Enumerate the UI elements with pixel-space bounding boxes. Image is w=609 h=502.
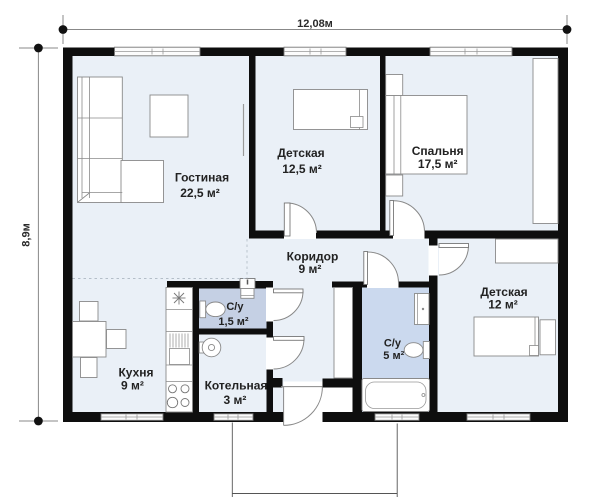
svg-text:1,5 м²: 1,5 м²: [218, 316, 248, 328]
svg-text:С/у: С/у: [384, 337, 402, 349]
svg-text:17,5 м²: 17,5 м²: [418, 157, 458, 171]
svg-text:Детская: Детская: [277, 146, 324, 160]
svg-text:9 м²: 9 м²: [121, 379, 144, 393]
svg-text:12 м²: 12 м²: [488, 298, 518, 312]
svg-text:Гостиная: Гостиная: [175, 171, 229, 185]
svg-text:Кухня: Кухня: [118, 366, 153, 380]
svg-text:5 м²: 5 м²: [383, 350, 404, 362]
svg-text:9 м²: 9 м²: [299, 262, 322, 276]
svg-text:8,9м: 8,9м: [21, 223, 33, 246]
svg-text:12,08м: 12,08м: [297, 18, 333, 30]
svg-text:С/у: С/у: [226, 301, 244, 313]
svg-text:12,5 м²: 12,5 м²: [282, 162, 322, 176]
svg-text:Спальня: Спальня: [412, 144, 464, 158]
svg-text:Котельная: Котельная: [205, 378, 268, 392]
svg-text:3 м²: 3 м²: [224, 393, 247, 407]
svg-text:22,5 м²: 22,5 м²: [180, 186, 220, 200]
